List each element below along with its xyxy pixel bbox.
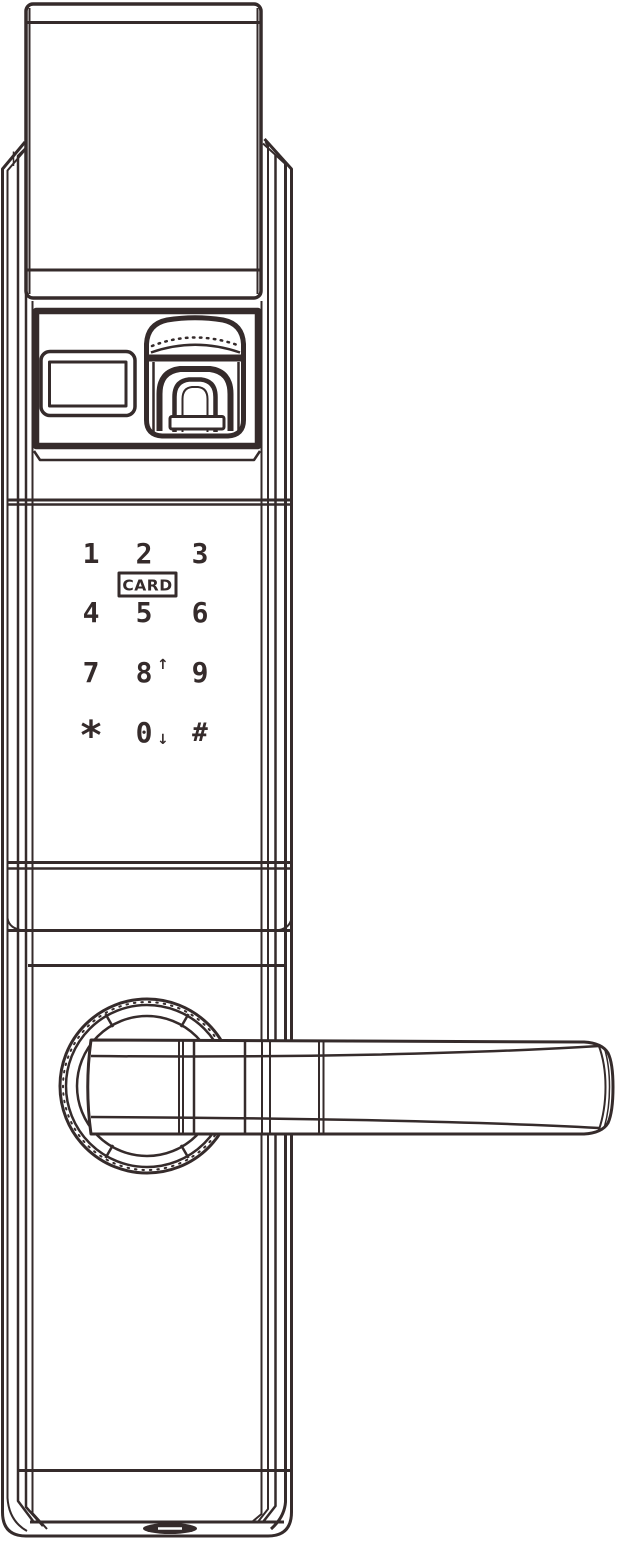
- display-window: [41, 352, 135, 416]
- key-1[interactable]: 1: [83, 537, 100, 570]
- svg-text:#: #: [192, 718, 208, 748]
- rosette-tick-lower-left: [106, 1145, 114, 1158]
- svg-text:5: 5: [136, 596, 153, 629]
- card-label: CARD: [122, 577, 172, 595]
- svg-text:7: 7: [83, 656, 100, 689]
- rosette-tick-lower-right: [181, 1145, 189, 1158]
- door-handle[interactable]: [60, 999, 613, 1173]
- svg-text:9: 9: [192, 656, 209, 689]
- bottom-port: [143, 1523, 197, 1534]
- body-face-edge-left: [33, 301, 48, 1529]
- display-inner: [50, 362, 127, 406]
- svg-text:2: 2: [136, 537, 153, 570]
- card-reader-zone[interactable]: CARD: [119, 573, 176, 596]
- fingerprint-bottom-plate: [170, 417, 224, 430]
- sensor-panel-bevel: [34, 451, 260, 460]
- sensor-panel: [34, 311, 260, 460]
- key-0[interactable]: 0 ↓: [136, 716, 169, 749]
- rosette-tick-upper-right: [181, 1014, 189, 1027]
- svg-text:0: 0: [136, 716, 153, 749]
- door-lock-drawing: 1 2 3 CARD 4 5 6 7 8 ↑ 9 * 0 ↓: [0, 0, 617, 1541]
- svg-text:3: 3: [192, 537, 209, 570]
- key-hash[interactable]: #: [192, 718, 208, 748]
- svg-text:*: *: [79, 713, 103, 759]
- body-line-right-3: [263, 155, 276, 1522]
- key-star[interactable]: *: [79, 713, 103, 759]
- key-7[interactable]: 7: [83, 656, 100, 689]
- key-2[interactable]: 2: [136, 537, 153, 570]
- key-3[interactable]: 3: [192, 537, 209, 570]
- key-4[interactable]: 4: [83, 596, 100, 629]
- top-cover-outline: [26, 4, 261, 298]
- down-arrow-icon: ↓: [157, 732, 169, 748]
- divider-fillet-left: [8, 918, 25, 931]
- body-face-edge-right: [252, 301, 262, 1522]
- up-arrow-icon: ↑: [157, 657, 169, 673]
- key-5[interactable]: 5: [136, 596, 153, 629]
- body-line-right-4: [271, 163, 286, 1529]
- keypad: 1 2 3 CARD 4 5 6 7 8 ↑ 9 * 0 ↓: [79, 537, 208, 759]
- fingerprint-arc: [151, 345, 240, 353]
- key-6[interactable]: 6: [192, 596, 209, 629]
- svg-text:6: 6: [192, 596, 209, 629]
- handle-lever[interactable]: [88, 1040, 613, 1134]
- svg-text:1: 1: [83, 537, 100, 570]
- svg-text:8: 8: [136, 656, 153, 689]
- top-cover: [26, 4, 261, 298]
- fingerprint-sensor[interactable]: [147, 318, 244, 436]
- lock-illustration-canvas: 1 2 3 CARD 4 5 6 7 8 ↑ 9 * 0 ↓: [0, 0, 617, 1541]
- rosette-tick-upper-left: [106, 1014, 114, 1027]
- key-9[interactable]: 9: [192, 656, 209, 689]
- divider-fillet-right: [276, 918, 292, 931]
- key-8[interactable]: 8 ↑: [136, 656, 169, 689]
- svg-text:4: 4: [83, 596, 100, 629]
